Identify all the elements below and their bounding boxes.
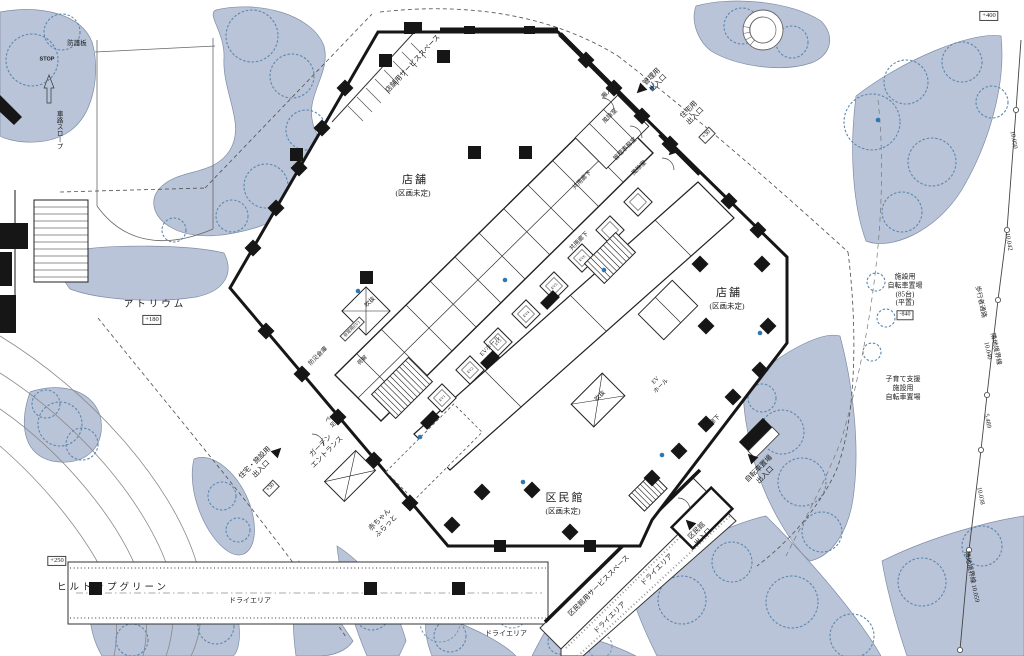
spiral-feature: [743, 10, 783, 50]
site-plan: 防護板 STOP 車路スロープ アトリウム +180 店舗 (区画未定) 店舗 …: [0, 0, 1024, 656]
plan-drawing: [0, 0, 1024, 656]
